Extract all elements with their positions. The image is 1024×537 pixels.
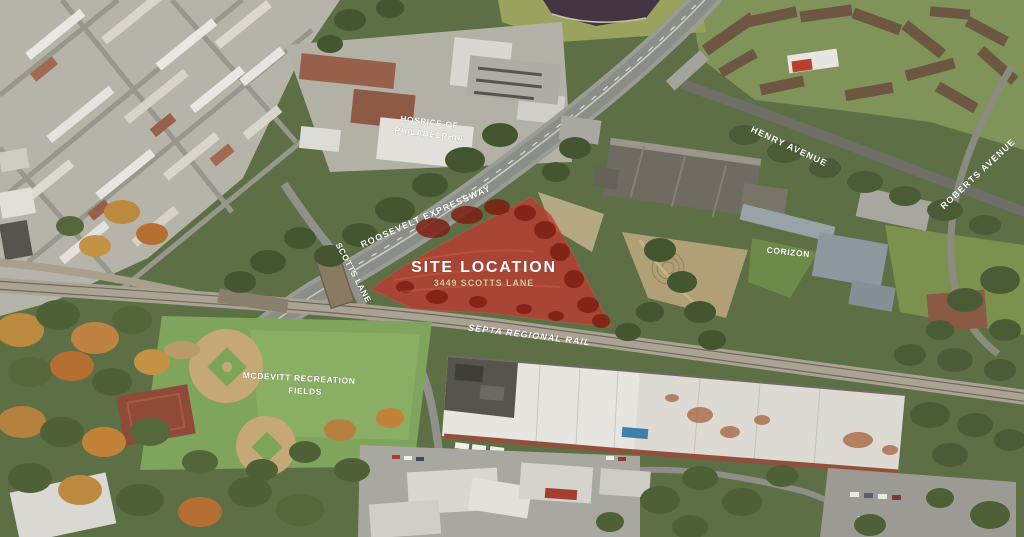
aerial-basemap: ROOSEVELT EXPRESSWAY HENRY AVENUE ROBERT… <box>0 0 1024 537</box>
site-location-title: SITE LOCATION <box>411 259 557 276</box>
mcdevitt-fields-label-line2: FIELDS <box>288 385 322 397</box>
site-address-label: 3449 SCOTTS LANE <box>434 278 534 288</box>
aerial-site-map: ROOSEVELT EXPRESSWAY HENRY AVENUE ROBERT… <box>0 0 1024 537</box>
